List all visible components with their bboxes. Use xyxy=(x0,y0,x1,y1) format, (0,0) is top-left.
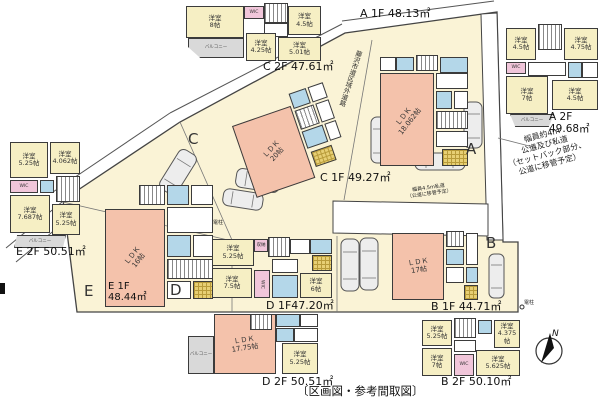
room-wic: WIC xyxy=(506,62,526,74)
toilet xyxy=(446,267,464,283)
stairs xyxy=(446,231,464,247)
room-label: WIC xyxy=(250,10,259,15)
bathroom xyxy=(310,239,332,254)
plan-label-e2f: E 2F 50.51㎡ xyxy=(16,246,86,258)
room: 洋室 7.5帖 xyxy=(212,268,252,298)
washroom xyxy=(290,239,310,254)
lot-letter-e: E xyxy=(84,282,93,300)
building-a1f: ＬＤＫ 18.062帖 xyxy=(378,55,470,168)
stairs xyxy=(139,185,165,205)
kitchen xyxy=(276,314,300,327)
kitchen xyxy=(436,111,468,129)
room: 洋室 6帖 xyxy=(300,273,332,298)
room-label: 洋室 5.25帖 xyxy=(19,153,40,168)
plan-label-e1f: E 1F 48.44㎡ xyxy=(108,281,147,303)
lot-letter-a: A xyxy=(466,140,476,158)
room-label: 洋室 7帖 xyxy=(431,355,444,370)
room-wic: WIC xyxy=(244,6,264,19)
plan-b2f: 洋室 5.25帖 洋室 4.375帖 洋室 7帖 WIC 洋室 5.625帖 xyxy=(420,318,522,378)
room-label: バルコニー xyxy=(521,118,543,123)
room-label: バルコニー xyxy=(205,45,227,50)
car-icon xyxy=(360,238,378,290)
room-label: 洋室 8帖 xyxy=(209,15,222,30)
bathroom xyxy=(478,320,492,334)
stairs xyxy=(56,176,80,202)
room: 洋室 7帖 xyxy=(422,348,452,376)
closet: 収納 xyxy=(254,239,268,252)
balcony: バルコニー xyxy=(188,38,244,58)
stairs xyxy=(416,55,438,71)
room: 洋室 4.25帖 xyxy=(246,33,276,61)
site-plan-image: N 洋室 8帖 WIC 洋室 4.5帖 バルコニー 洋室 4.25帖 洋室 5.… xyxy=(0,0,600,405)
room: 洋室 7.687帖 xyxy=(10,195,50,233)
plan-label-a1f: A 1F 48.13㎡ xyxy=(360,8,430,20)
bathroom xyxy=(568,62,582,78)
stairs xyxy=(264,3,288,23)
pole-label: 電柱 xyxy=(524,300,534,306)
plan-label-c2f: C 2F 47.61㎡ xyxy=(263,61,334,73)
room-label: ＬＤＫ 17帖 xyxy=(406,257,429,276)
room: 洋室 5.25帖 xyxy=(212,239,254,266)
room-wic: WIC xyxy=(254,270,270,298)
room-label: バルコニー xyxy=(29,239,51,244)
room: 洋室 4.5帖 xyxy=(288,6,321,35)
kitchen xyxy=(167,207,213,233)
room-label: 洋室 4.75帖 xyxy=(571,37,592,52)
room-label: 洋室 4.375帖 xyxy=(495,323,519,345)
room: 洋室 7帖 xyxy=(506,76,548,114)
bathroom xyxy=(446,249,464,265)
toilet xyxy=(272,275,298,298)
washroom xyxy=(466,233,478,265)
room: 洋室 4.75帖 xyxy=(564,28,598,60)
room-wic: WIC xyxy=(10,180,38,193)
bathroom xyxy=(396,57,414,71)
lot-letter-c: C xyxy=(188,130,198,148)
room-label: 収納 xyxy=(257,243,266,248)
hall xyxy=(454,340,476,352)
room-ldk: ＬＤＫ 18.062帖 xyxy=(380,73,434,166)
room-wic: WIC xyxy=(454,354,474,376)
lot-letter-d: D xyxy=(170,281,182,299)
washroom xyxy=(300,314,318,327)
building-d1f: 洋室 5.25帖 収納 洋室 7.5帖 WIC 洋室 6帖 xyxy=(210,237,335,300)
stairs xyxy=(250,314,272,330)
hall xyxy=(272,259,298,273)
room: 洋室 5.01帖 xyxy=(278,37,321,61)
room-label: WIC xyxy=(259,280,264,289)
stairs xyxy=(538,24,562,50)
plan-label-b1f: B 1F 44.71㎡ xyxy=(431,301,501,313)
hall xyxy=(436,73,468,89)
room: 洋室 4.375帖 xyxy=(494,320,520,348)
stairs xyxy=(268,237,290,257)
toilet xyxy=(436,91,452,109)
room-label: 洋室 4.5帖 xyxy=(296,13,313,28)
caption: 〔区画図・参考間取図〕 xyxy=(297,385,424,398)
room-label: ＬＤＫ 17.75帖 xyxy=(230,334,259,354)
car-icon xyxy=(341,239,359,291)
plan-label-c1f: C 1F 49.27㎡ xyxy=(320,172,391,184)
washroom xyxy=(191,185,213,205)
room-label: 洋室 4.5帖 xyxy=(567,88,584,103)
room-label: 洋室 6帖 xyxy=(310,278,323,293)
toilet xyxy=(167,235,191,257)
bathroom xyxy=(276,328,294,342)
hall xyxy=(528,62,566,76)
room: 洋室 5.25帖 xyxy=(10,142,48,178)
room-label: ＬＤＫ 16帖 xyxy=(122,245,148,271)
room-label: ＬＤＫ 20帖 xyxy=(261,139,287,165)
building-b1f: ＬＤＫ 17帖 xyxy=(390,231,480,302)
room-label: バルコニー xyxy=(190,352,212,357)
room-label: 洋室 4.25帖 xyxy=(251,40,272,55)
bathroom xyxy=(167,185,189,205)
bathroom xyxy=(440,57,468,73)
room-label: 洋室 5.25帖 xyxy=(290,351,311,366)
washroom xyxy=(454,91,468,109)
room-label: 洋室 7.5帖 xyxy=(224,276,241,291)
stairs xyxy=(454,318,476,338)
room-label: 洋室 5.625帖 xyxy=(485,356,510,371)
lot-letter-b: B xyxy=(486,234,496,252)
washroom xyxy=(294,328,318,342)
plan-d2f: バルコニー ＬＤＫ 17.75帖 洋室 5.25帖 xyxy=(188,312,320,376)
balcony: バルコニー xyxy=(188,336,214,374)
plan-label-d1f: D 1F47.20㎡ xyxy=(266,300,334,312)
room-label: 洋室 7.687帖 xyxy=(17,207,42,222)
balcony: バルコニー xyxy=(510,114,554,127)
room-label: ＬＤＫ 18.062帖 xyxy=(391,102,423,137)
edge-marker xyxy=(0,283,5,294)
plan-label-b2f: B 2F 50.10㎡ xyxy=(441,376,511,388)
washroom xyxy=(466,267,478,283)
room-label: 洋室 5.01帖 xyxy=(289,42,310,57)
compass-icon: N xyxy=(536,329,562,364)
room-label: WIC xyxy=(512,65,521,70)
room: 洋室 4.5帖 xyxy=(552,80,598,110)
washroom xyxy=(582,62,598,78)
hall xyxy=(436,131,468,147)
room-label: 洋室 5.25帖 xyxy=(56,212,77,227)
plan-e2f: 洋室 5.25帖 洋室 4.062帖 WIC 洋室 7.687帖 洋室 5.25… xyxy=(8,138,82,250)
room-label: WIC xyxy=(20,184,29,189)
room-label: 洋室 4.062帖 xyxy=(52,151,77,166)
room: 洋室 4.5帖 xyxy=(506,28,536,60)
room: 洋室 8帖 xyxy=(186,6,244,38)
entrance xyxy=(312,255,332,271)
car-icon xyxy=(489,254,504,298)
washroom xyxy=(380,57,396,71)
room-ldk: ＬＤＫ 17帖 xyxy=(392,233,444,300)
room-label: WIC xyxy=(460,362,469,367)
bathroom xyxy=(40,180,54,193)
room-label: 洋室 5.25帖 xyxy=(223,245,244,260)
entrance xyxy=(442,149,468,166)
room: 洋室 5.25帖 xyxy=(282,343,318,374)
room: 洋室 5.25帖 xyxy=(422,320,452,346)
hall xyxy=(167,259,213,279)
room: 洋室 5.25帖 xyxy=(52,204,80,235)
room: 洋室 5.625帖 xyxy=(476,350,520,376)
pole-label: 電柱 xyxy=(213,220,223,226)
plan-c2f: 洋室 8帖 WIC 洋室 4.5帖 バルコニー 洋室 4.25帖 洋室 5.01… xyxy=(186,3,322,63)
room-label: 洋室 7帖 xyxy=(521,88,534,103)
entrance xyxy=(464,285,478,300)
room: 洋室 4.062帖 xyxy=(50,142,80,174)
compass-north-label: N xyxy=(552,329,559,339)
entrance xyxy=(311,145,337,167)
room-label: 洋室 5.25帖 xyxy=(427,326,448,341)
room-label: 洋室 4.5帖 xyxy=(513,37,530,52)
